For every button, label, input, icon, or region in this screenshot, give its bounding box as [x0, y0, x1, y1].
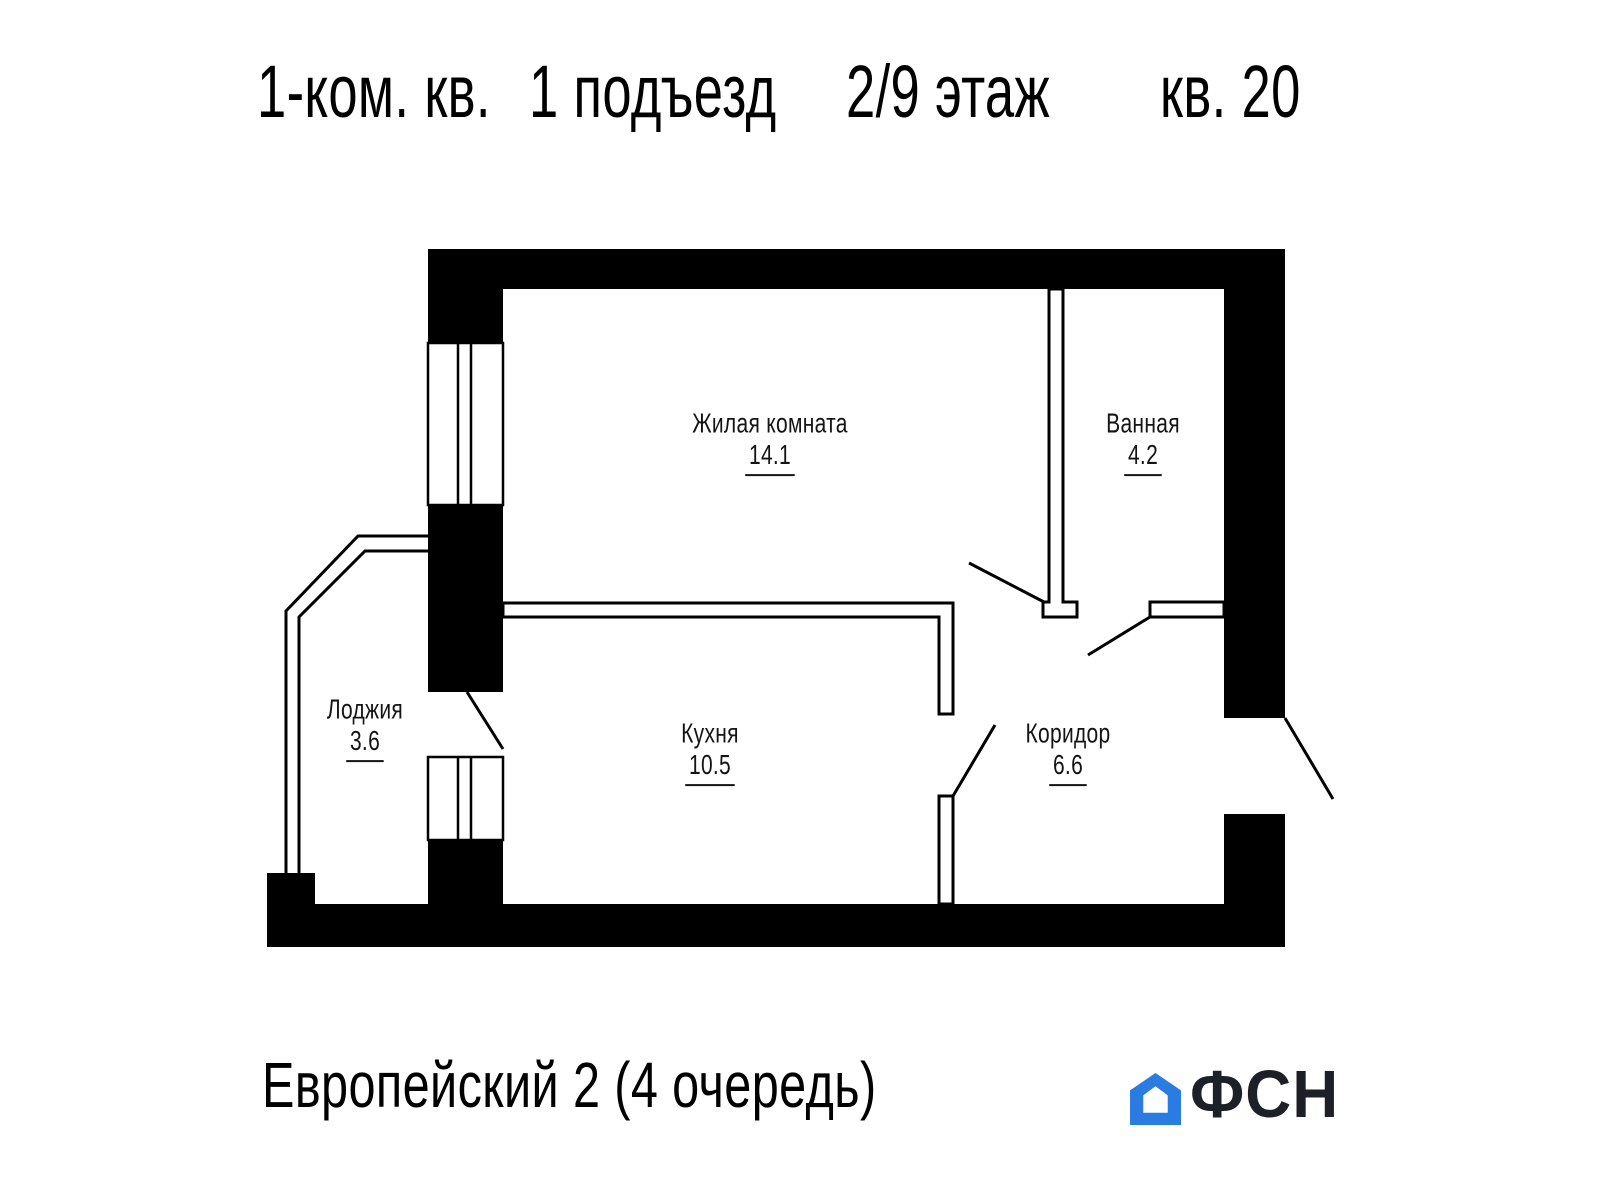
wall-bottom: [267, 904, 1285, 947]
room-label-loggia: Лоджия: [327, 695, 403, 726]
door-swing-kitchen: [953, 725, 995, 796]
project-name: Европейский 2 (4 очередь): [262, 1053, 877, 1117]
room-label-bathroom: Ванная: [1106, 409, 1180, 440]
floor-plan-page: 1-ком. кв. 1 подъезд 2/9 этаж кв. 20: [0, 0, 1600, 1200]
door-swing-loggia: [467, 692, 503, 749]
partition-kitchen: [503, 603, 953, 714]
wall-left-upper-pier: [428, 249, 503, 343]
window-kitchen: [428, 757, 503, 840]
house-icon: [1130, 1073, 1181, 1125]
window-living-room: [428, 343, 503, 505]
door-swing-bathroom: [1088, 617, 1150, 655]
door-swing-living-room: [969, 563, 1044, 602]
developer-logo: ФСН: [1130, 1071, 1390, 1131]
room-area-corridor: 6.6: [1049, 750, 1087, 786]
door-swing-entrance: [1285, 718, 1333, 799]
wall-left-lower-pier: [428, 840, 503, 947]
wall-left-mid-pier: [428, 505, 503, 692]
floor-plan-drawing: [0, 0, 1600, 1200]
room-area-living: 14.1: [745, 440, 795, 476]
room-area-kitchen: 10.5: [685, 750, 735, 786]
room-area-bathroom: 4.2: [1124, 440, 1162, 476]
wall-top: [428, 249, 1285, 289]
room-area-loggia: 3.6: [346, 726, 384, 762]
room-label-living: Жилая комната: [692, 409, 848, 440]
room-label-kitchen: Кухня: [681, 719, 739, 750]
partition-bathroom: [1043, 289, 1077, 617]
room-label-corridor: Коридор: [1025, 719, 1110, 750]
logo-text: ФСН: [1190, 1061, 1339, 1128]
wall-loggia-corner: [267, 873, 315, 947]
partition-bathroom-door-stub: [1150, 602, 1224, 617]
partition-kitchen-lower: [939, 796, 953, 904]
wall-right-upper: [1224, 249, 1285, 718]
